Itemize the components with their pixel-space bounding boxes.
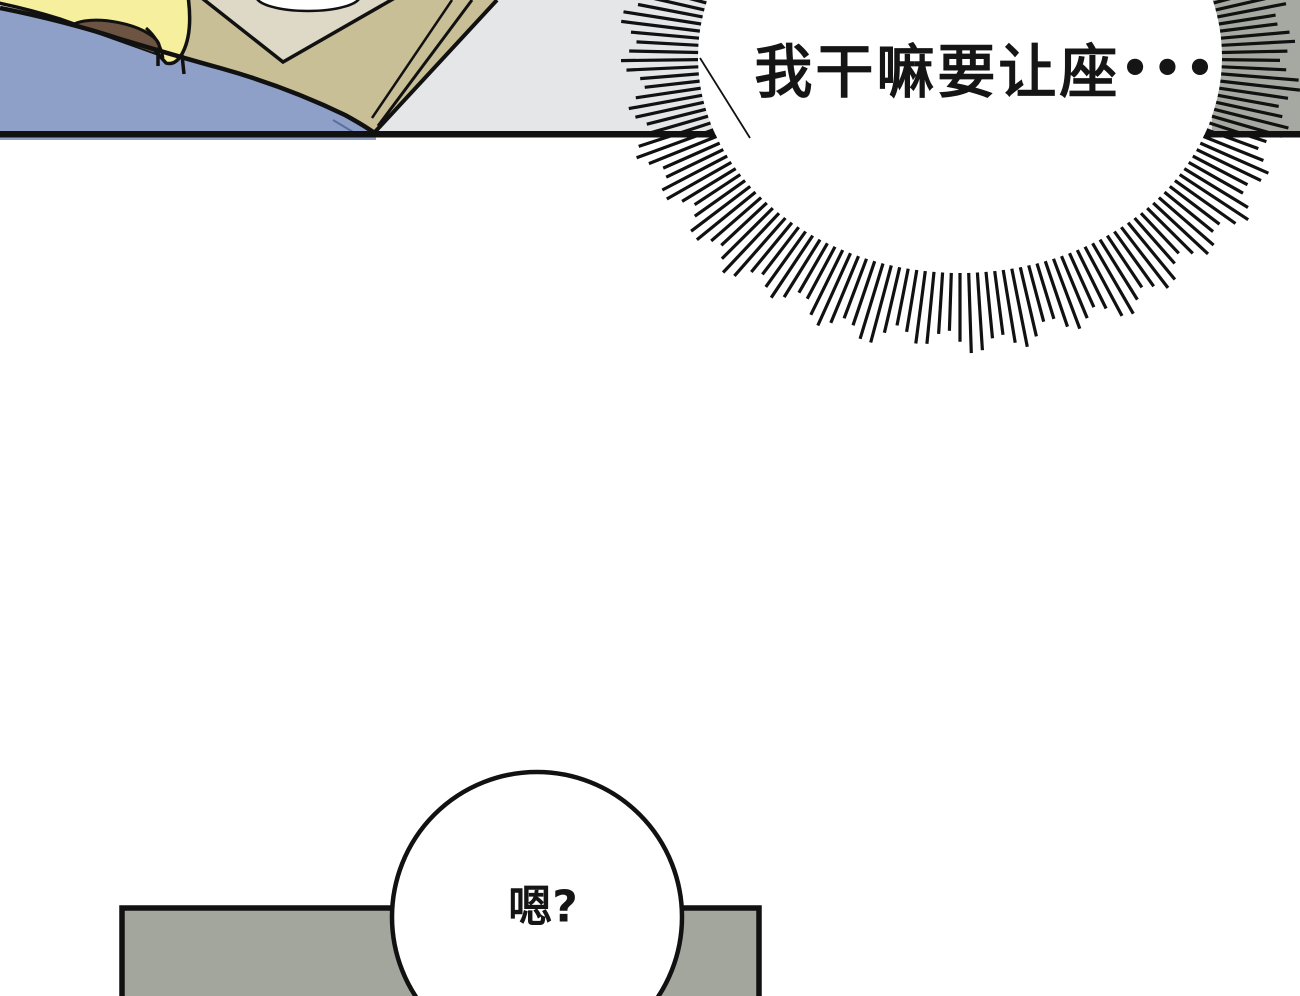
burst-ray [1093,243,1134,313]
burst-ray [927,272,934,344]
burst-ray [629,51,698,53]
burst-ray [722,208,773,259]
burst-ray [871,265,892,342]
burst-ray [1147,208,1193,253]
burst-ray [1128,223,1175,280]
burst-text-main: 我干嘛要让座 [754,38,1120,106]
burst-ray [907,270,917,332]
burst-bubble: 我干嘛要让座••• [621,0,1300,353]
burst-ray [1175,181,1236,224]
tassel-tick-2 [182,55,184,74]
burst-ray [949,273,951,331]
burst-ray [969,273,972,353]
burst-ray [1159,198,1214,246]
burst-ray [853,261,875,325]
comic-page: 嗯? 我干嘛要让座••• [0,0,1300,996]
burst-ray [986,272,993,338]
bottom-panel: 嗯? [122,772,759,996]
burst-ray [995,271,1003,335]
burst-ray [939,273,943,334]
burst-ray [771,236,813,298]
burst-ray [1222,51,1288,52]
burst-ray [977,273,982,351]
speech-bubble-text: 嗯? [508,882,578,933]
burst-ray [1184,169,1248,208]
burst-ray [621,60,698,61]
burst-ray [711,198,761,241]
burst-ray [1222,60,1280,61]
burst-ray [916,271,926,343]
comic-artwork: 嗯? 我干嘛要让座••• [0,0,1300,996]
burst-text-ellipsis: ••• [1120,41,1217,95]
burst-ray [667,162,732,199]
